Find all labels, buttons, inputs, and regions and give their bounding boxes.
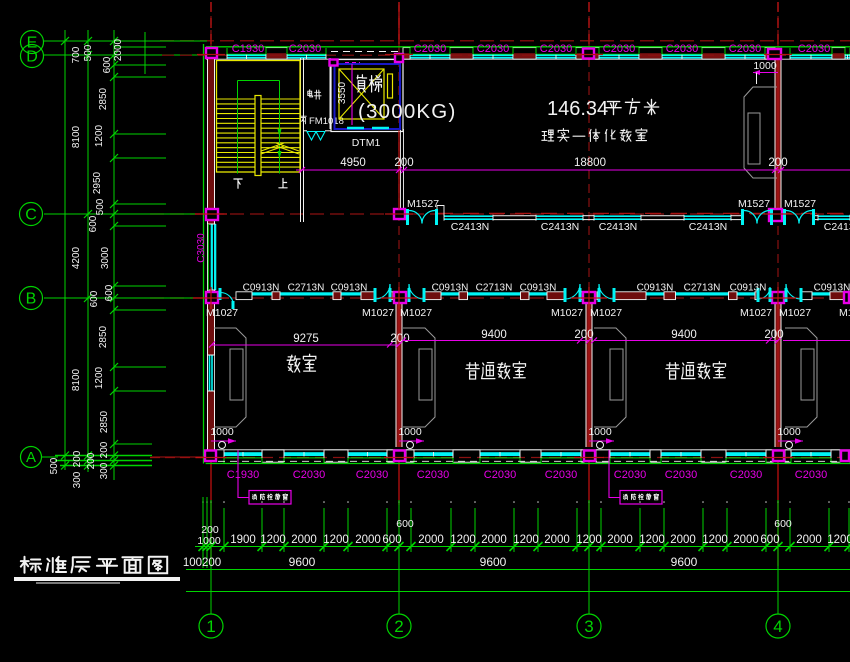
svg-text:C2030: C2030	[614, 469, 646, 481]
svg-text:C0913N: C0913N	[730, 283, 767, 294]
svg-text:C2030: C2030	[414, 43, 446, 55]
svg-text:1200: 1200	[513, 534, 539, 546]
svg-text:M1527: M1527	[738, 198, 770, 210]
svg-text:2000: 2000	[291, 534, 317, 546]
svg-text:C2030: C2030	[293, 469, 325, 481]
svg-text:200: 200	[394, 157, 413, 169]
svg-text:9600: 9600	[480, 555, 507, 569]
svg-text:2000: 2000	[670, 534, 696, 546]
svg-text:C1930: C1930	[227, 469, 259, 481]
svg-text:1900: 1900	[230, 534, 256, 546]
svg-text:4950: 4950	[340, 157, 366, 169]
svg-text:300: 300	[72, 471, 83, 488]
svg-text:C2713N: C2713N	[684, 283, 721, 294]
svg-text:200: 200	[574, 329, 593, 341]
svg-text:500: 500	[83, 44, 94, 61]
svg-text:C: C	[25, 207, 37, 224]
svg-text:C2030: C2030	[730, 469, 762, 481]
svg-text:2000: 2000	[796, 534, 822, 546]
svg-text:1200: 1200	[260, 534, 286, 546]
svg-text:500: 500	[49, 457, 60, 474]
svg-text:C2413N: C2413N	[824, 221, 850, 233]
svg-text:1200: 1200	[450, 534, 476, 546]
svg-text:600: 600	[89, 290, 100, 307]
svg-text:C0913N: C0913N	[520, 283, 557, 294]
svg-text:C2413N: C2413N	[599, 221, 638, 233]
svg-text:600: 600	[102, 56, 113, 73]
svg-text:600: 600	[88, 215, 99, 232]
svg-text:C2030: C2030	[289, 43, 321, 55]
svg-text:1200: 1200	[94, 366, 105, 389]
svg-text:2000: 2000	[544, 534, 570, 546]
svg-text:M1527: M1527	[784, 198, 816, 210]
svg-text:1000: 1000	[777, 426, 801, 438]
svg-text:1200: 1200	[576, 534, 602, 546]
svg-text:B: B	[26, 291, 37, 308]
svg-text:C2030: C2030	[540, 43, 572, 55]
svg-text:1: 1	[206, 617, 215, 636]
svg-text:C2030: C2030	[795, 469, 827, 481]
svg-text:C2030: C2030	[484, 469, 516, 481]
svg-text:M1027: M1027	[779, 307, 811, 319]
svg-text:9400: 9400	[481, 329, 507, 341]
svg-text:600: 600	[396, 518, 414, 530]
svg-text:18800: 18800	[574, 157, 606, 169]
svg-text:C0913N: C0913N	[637, 283, 674, 294]
svg-text:3550: 3550	[337, 81, 348, 104]
svg-text:M1027: M1027	[362, 307, 394, 319]
svg-text:C2030: C2030	[356, 469, 388, 481]
svg-text:C2030: C2030	[729, 43, 761, 55]
svg-text:1000: 1000	[753, 60, 777, 72]
svg-text:9400: 9400	[671, 329, 697, 341]
svg-text:2850: 2850	[99, 410, 110, 433]
svg-text:C2413N: C2413N	[451, 221, 490, 233]
svg-text:DTM1: DTM1	[352, 137, 381, 149]
svg-text:200: 200	[764, 329, 783, 341]
svg-text:A: A	[26, 449, 36, 466]
svg-text:700: 700	[71, 46, 82, 63]
svg-text:600: 600	[382, 534, 401, 546]
svg-text:C3030: C3030	[196, 233, 207, 263]
svg-text:M1027: M1027	[590, 307, 622, 319]
svg-text:C2030: C2030	[417, 469, 449, 481]
svg-text:2000: 2000	[481, 534, 507, 546]
svg-text:9600: 9600	[671, 555, 698, 569]
svg-text:1200: 1200	[827, 534, 850, 546]
svg-text:9600: 9600	[289, 555, 316, 569]
svg-text:C1930: C1930	[232, 43, 264, 55]
svg-text:500: 500	[95, 198, 106, 215]
svg-text:8100: 8100	[71, 125, 82, 148]
svg-text:M10: M10	[839, 307, 850, 319]
svg-text:200: 200	[768, 157, 787, 169]
svg-text:2000: 2000	[607, 534, 633, 546]
svg-text:4: 4	[773, 617, 782, 636]
svg-text:2000: 2000	[418, 534, 444, 546]
svg-text:600: 600	[774, 518, 792, 530]
svg-text:200: 200	[99, 441, 110, 458]
svg-text:C2030: C2030	[666, 43, 698, 55]
svg-text:9275: 9275	[293, 333, 319, 345]
svg-text:C0913N: C0913N	[243, 283, 280, 294]
svg-text:C2030: C2030	[798, 43, 830, 55]
svg-text:M1027: M1027	[400, 307, 432, 319]
svg-text:146.34: 146.34	[547, 98, 608, 120]
svg-text:8100: 8100	[71, 368, 82, 391]
svg-text:C2030: C2030	[665, 469, 697, 481]
svg-text:600: 600	[760, 534, 779, 546]
svg-text:3000: 3000	[100, 246, 111, 269]
svg-text:M1527: M1527	[407, 198, 439, 210]
svg-text:1200: 1200	[94, 124, 105, 147]
svg-text:1000: 1000	[210, 426, 234, 438]
svg-text:C2030: C2030	[545, 469, 577, 481]
svg-text:C2030: C2030	[603, 43, 635, 55]
svg-text:C2713N: C2713N	[288, 283, 325, 294]
svg-text:C2030: C2030	[477, 43, 509, 55]
svg-text:300: 300	[99, 462, 110, 479]
svg-text:1000: 1000	[197, 535, 221, 547]
svg-text:1200: 1200	[702, 534, 728, 546]
svg-text:4200: 4200	[71, 246, 82, 269]
svg-text:600: 600	[104, 284, 115, 301]
svg-text:C2413N: C2413N	[689, 221, 728, 233]
svg-text:C0913N: C0913N	[432, 283, 469, 294]
svg-text:(3000KG): (3000KG)	[358, 100, 456, 123]
svg-text:1200: 1200	[323, 534, 349, 546]
svg-text:1200: 1200	[639, 534, 665, 546]
svg-text:2: 2	[394, 617, 403, 636]
svg-text:200: 200	[72, 450, 83, 467]
svg-text:M1027: M1027	[740, 307, 772, 319]
svg-text:2000: 2000	[113, 38, 124, 61]
svg-text:C2413N: C2413N	[541, 221, 580, 233]
svg-text:C2713N: C2713N	[476, 283, 513, 294]
svg-text:2950: 2950	[92, 171, 103, 194]
svg-text:1000: 1000	[588, 426, 612, 438]
svg-text:200: 200	[86, 452, 97, 469]
svg-text:2000: 2000	[355, 534, 381, 546]
svg-text:3: 3	[584, 617, 593, 636]
svg-text:D: D	[26, 49, 38, 66]
svg-text:100200: 100200	[183, 557, 221, 569]
svg-text:C0913N: C0913N	[331, 283, 368, 294]
svg-text:2850: 2850	[98, 325, 109, 348]
svg-text:2000: 2000	[733, 534, 759, 546]
svg-text:2850: 2850	[98, 87, 109, 110]
svg-text:1000: 1000	[398, 426, 422, 438]
svg-text:M1027: M1027	[551, 307, 583, 319]
svg-text:C0913N: C0913N	[814, 283, 850, 294]
